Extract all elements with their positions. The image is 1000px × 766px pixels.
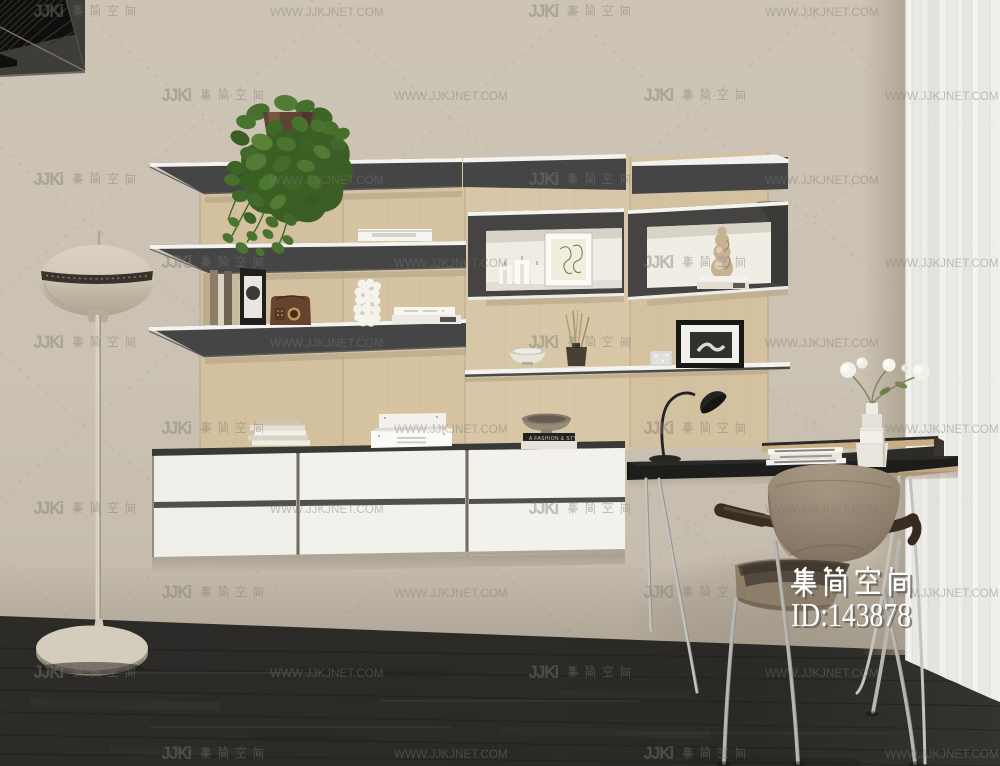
svg-text:ID:143878: ID:143878 [791, 597, 911, 634]
svg-text:A FASHION & STYLE: A FASHION & STYLE [529, 436, 584, 442]
